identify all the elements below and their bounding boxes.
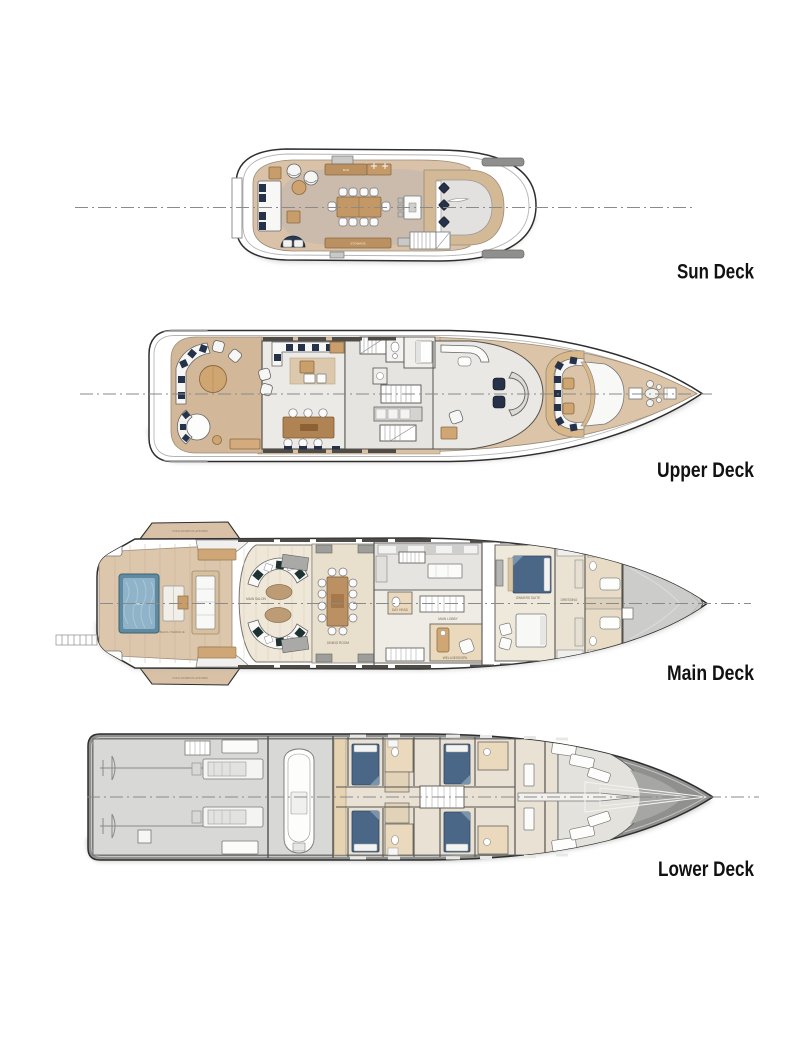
- svg-text:MAIN SALON: MAIN SALON: [246, 597, 266, 601]
- svg-text:STOWAGE: STOWAGE: [350, 242, 365, 246]
- svg-text:DRESSING: DRESSING: [561, 598, 578, 602]
- svg-text:FOLD DOWN PLATFORM: FOLD DOWN PLATFORM: [172, 676, 208, 680]
- svg-text:BEACH TERRACE: BEACH TERRACE: [159, 630, 184, 634]
- svg-text:Upper Deck: Upper Deck: [657, 459, 754, 482]
- svg-text:Sun Deck: Sun Deck: [677, 261, 754, 284]
- svg-text:DAY HEAD: DAY HEAD: [392, 608, 409, 612]
- svg-text:OWNERS SUITE: OWNERS SUITE: [516, 596, 541, 600]
- svg-text:DINING ROOM: DINING ROOM: [327, 641, 349, 645]
- svg-text:MAIN LOBBY: MAIN LOBBY: [438, 617, 458, 621]
- svg-text:Main Deck: Main Deck: [667, 662, 754, 685]
- svg-text:WELLNESS/SPA: WELLNESS/SPA: [443, 656, 468, 660]
- svg-text:BAR: BAR: [343, 168, 350, 172]
- svg-text:FOLD DOWN PLATFORM: FOLD DOWN PLATFORM: [172, 529, 208, 533]
- svg-text:Lower Deck: Lower Deck: [658, 858, 754, 881]
